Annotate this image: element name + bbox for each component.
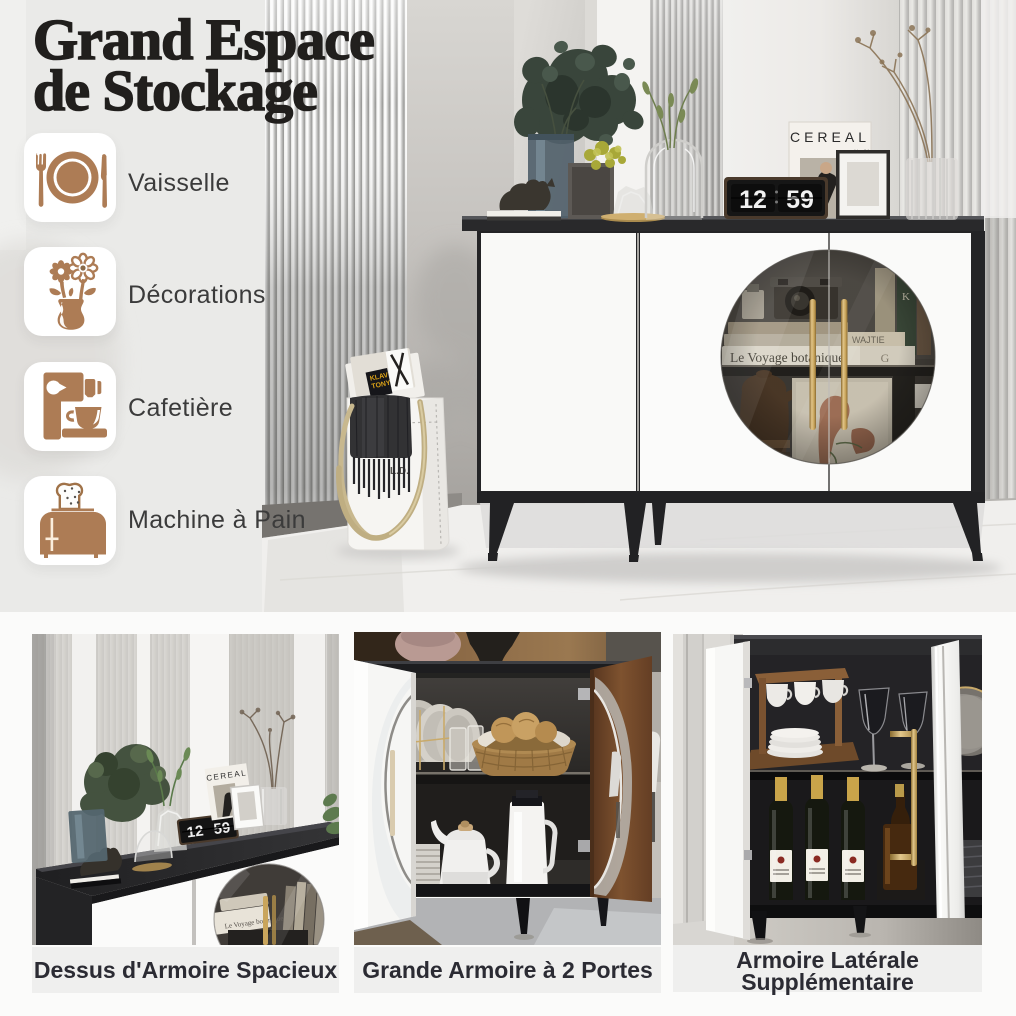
svg-text:59: 59 <box>786 186 814 214</box>
svg-text:59: 59 <box>213 819 232 838</box>
svg-text:CEREAL: CEREAL <box>790 129 870 145</box>
svg-text:12: 12 <box>739 186 767 214</box>
svg-text:12: 12 <box>186 823 205 842</box>
